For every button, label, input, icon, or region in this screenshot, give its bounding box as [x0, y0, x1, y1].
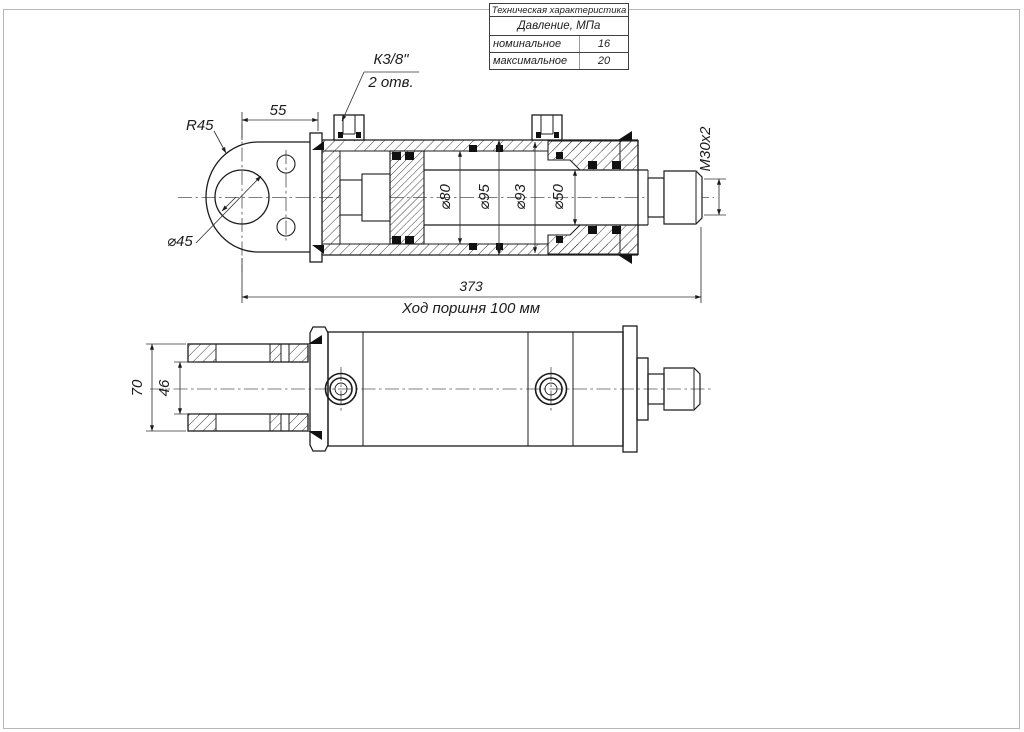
dim-d80: ⌀80 — [437, 183, 454, 209]
dim-55: 55 — [270, 102, 287, 119]
dim-70: 70 — [129, 379, 146, 396]
fork-bars — [188, 344, 308, 431]
clevis-eye — [206, 142, 310, 252]
spec-row-value: 20 — [580, 55, 628, 67]
spec-row-label: максимальное — [490, 53, 580, 69]
engineering-drawing: 55 R45 ⌀45 К3/8" 2 отв. ⌀80 ⌀95 ⌀93 ⌀50 … — [0, 0, 1024, 732]
dim-r45: R45 — [186, 117, 214, 134]
dim-m30x2: М30х2 — [697, 126, 714, 172]
table-row: максимальное 20 — [490, 53, 628, 69]
spec-table-title: Техническая характеристика — [492, 5, 627, 16]
spec-row-value: 16 — [580, 38, 628, 50]
rod-end — [648, 171, 702, 224]
dim-373: 373 — [459, 278, 483, 294]
dim-d95: ⌀95 — [476, 183, 493, 209]
port-boss — [334, 115, 562, 140]
spec-row-label: номинальное — [490, 36, 580, 52]
port-thread-label: К3/8" — [373, 51, 409, 68]
spec-table: Техническая характеристика Давление, МПа… — [489, 3, 629, 70]
side-view — [150, 326, 714, 452]
dim-d45: ⌀45 — [167, 233, 193, 250]
page-frame — [4, 10, 1020, 729]
piston-section — [390, 151, 424, 244]
dim-d50: ⌀50 — [550, 183, 567, 209]
port-count-label: 2 отв. — [367, 74, 413, 91]
drawing-sheet: 55 R45 ⌀45 К3/8" 2 отв. ⌀80 ⌀95 ⌀93 ⌀50 … — [0, 0, 1024, 732]
table-row: номинальное 16 — [490, 36, 628, 53]
dim-d93: ⌀93 — [512, 183, 529, 209]
spec-table-group-header: Давление, МПа — [518, 20, 601, 32]
dim-46: 46 — [156, 379, 173, 396]
stroke-note: Ход поршня 100 мм — [401, 300, 540, 317]
